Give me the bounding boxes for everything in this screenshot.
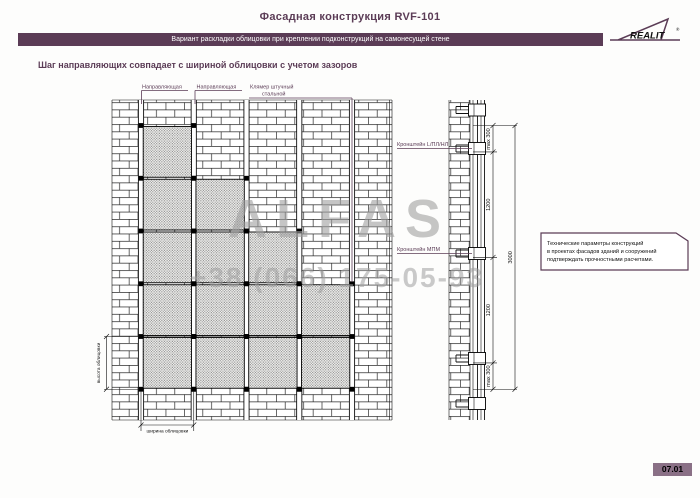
klamer-clip: [191, 229, 196, 234]
klamer-clip: [191, 176, 196, 181]
note-line1: Технические параметры конструкций: [547, 240, 643, 247]
klamer-clip: [139, 176, 144, 181]
klamer-clip: [244, 387, 249, 392]
dim-step-lower: 1200: [486, 304, 492, 316]
klamer-clip: [297, 387, 302, 392]
klamer-label-line1: Клямер штучный: [250, 84, 294, 91]
page-number-badge: 07.01: [653, 463, 692, 476]
rail1-label: Направляющая: [142, 85, 182, 91]
klamer-clip: [350, 334, 355, 339]
dim-overall: 3000: [508, 251, 514, 263]
cladding-panel: [301, 338, 349, 389]
section-brick-wall: [449, 100, 470, 420]
dim-step-upper: 1200: [486, 198, 492, 210]
cladding-panel: [143, 285, 191, 336]
cladding-panel: [196, 338, 244, 389]
dim-top-offset: max 300: [486, 128, 492, 149]
cladding-panel: [143, 179, 191, 230]
dim-bottom-offset: max 300: [486, 365, 492, 386]
klamer-label-line2: стальной: [262, 91, 286, 98]
klamer-clip: [191, 387, 196, 392]
note-line2: в проектах фасадов зданий и сооружений: [547, 248, 656, 255]
alfas-watermark: ALFAS: [228, 188, 450, 250]
elevation-view: Направляющая Направляющая Клямер штучный…: [96, 84, 392, 435]
cladding-panel: [143, 232, 191, 283]
cladding-panel: [143, 127, 191, 178]
note-line3: подтверждать прочностными расчетами.: [547, 257, 654, 263]
rail2-label: Направляющая: [197, 85, 237, 91]
klamer-clip: [139, 229, 144, 234]
section-view: Кронштейн L/ПЛ/НЛ Кронштейн МПМ max 300 …: [397, 100, 518, 420]
klamer-clip: [297, 334, 302, 339]
klamer-clip: [191, 123, 196, 128]
phone-watermark: +38 (066) 175-05-93: [190, 262, 484, 294]
klamer-clip: [191, 334, 196, 339]
klamer-clip: [244, 334, 249, 339]
cladding-panel: [143, 338, 191, 389]
note-callout: Технические параметры конструкций в прое…: [541, 233, 688, 270]
bracket-top-label: Кронштейн L/ПЛ/НЛ: [397, 141, 449, 148]
klamer-clip: [350, 387, 355, 392]
klamer-clip: [139, 281, 144, 286]
cladding-width-label: ширина облицовки: [146, 429, 188, 435]
klamer-clip: [139, 123, 144, 128]
cladding-height-label: высота облицовки: [96, 342, 102, 383]
klamer-clip: [244, 176, 249, 181]
cladding-panel: [249, 338, 297, 389]
